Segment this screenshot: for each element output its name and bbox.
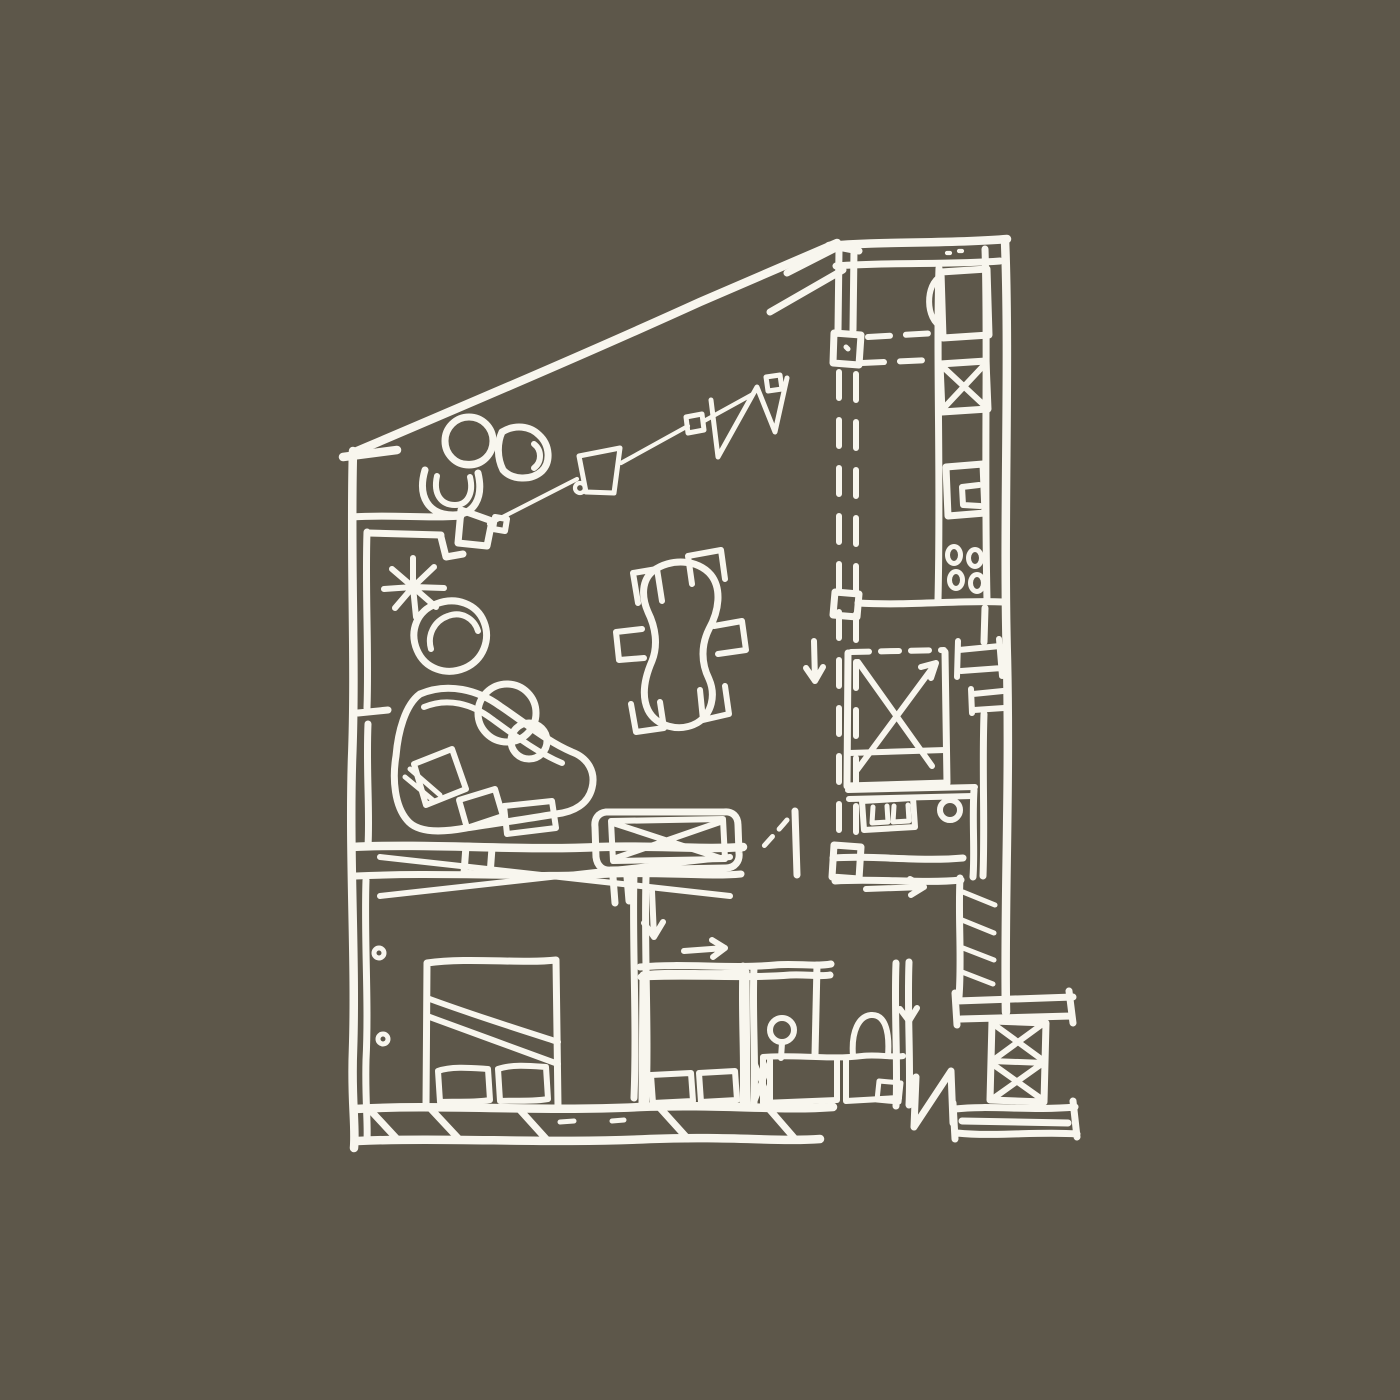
blanket-line — [849, 750, 945, 753]
floor-plan-canvas — [0, 0, 1400, 1400]
left-wall-inner-lower — [366, 880, 368, 1140]
left-wall-inner-upper — [366, 532, 367, 708]
main-bottom-wall-inner — [357, 1138, 820, 1141]
left-wall-inner-mid — [367, 724, 368, 846]
counter-front — [938, 268, 939, 600]
basin-toilet-partition — [815, 965, 817, 1055]
kitchen-counter-bottom — [858, 602, 1003, 604]
window-sill — [358, 710, 388, 713]
bottom-right-wall — [953, 1101, 1077, 1139]
lower-right-wall-inner — [959, 878, 960, 997]
inner-wall-seg2 — [983, 714, 984, 876]
right-wall-outer — [1005, 240, 1008, 1012]
floor-plan-sketch — [0, 0, 1400, 1400]
hall-door-leaf — [795, 811, 797, 875]
bedroom-inner-wall — [973, 790, 974, 877]
x-column-midbar — [991, 1061, 1045, 1063]
square-dot — [846, 347, 848, 349]
bed-top-dashed — [851, 650, 944, 652]
inner-wall-seg1 — [984, 608, 985, 642]
left-wall-outer — [351, 451, 354, 1148]
top-wall-inner — [836, 261, 1000, 266]
